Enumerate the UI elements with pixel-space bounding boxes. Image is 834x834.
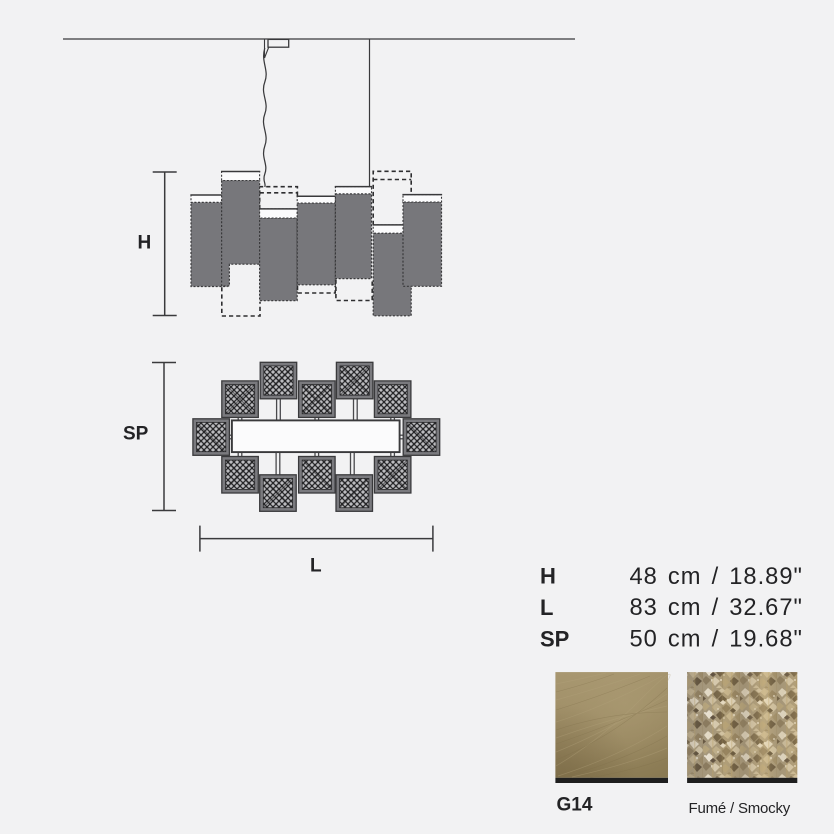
svg-text:48 cm / 18.89": 48 cm / 18.89" (630, 564, 803, 590)
svg-text:SP: SP (123, 424, 149, 445)
svg-text:50 cm / 19.68": 50 cm / 19.68" (630, 627, 803, 653)
svg-text:G14: G14 (557, 795, 593, 816)
svg-text:L: L (310, 556, 322, 577)
svg-text:L: L (540, 595, 553, 620)
svg-text:H: H (540, 564, 556, 589)
svg-text:SP: SP (540, 626, 569, 651)
svg-text:83 cm / 32.67": 83 cm / 32.67" (630, 595, 803, 621)
svg-text:H: H (138, 233, 152, 254)
svg-text:Fumé / Smocky: Fumé / Smocky (689, 800, 791, 817)
